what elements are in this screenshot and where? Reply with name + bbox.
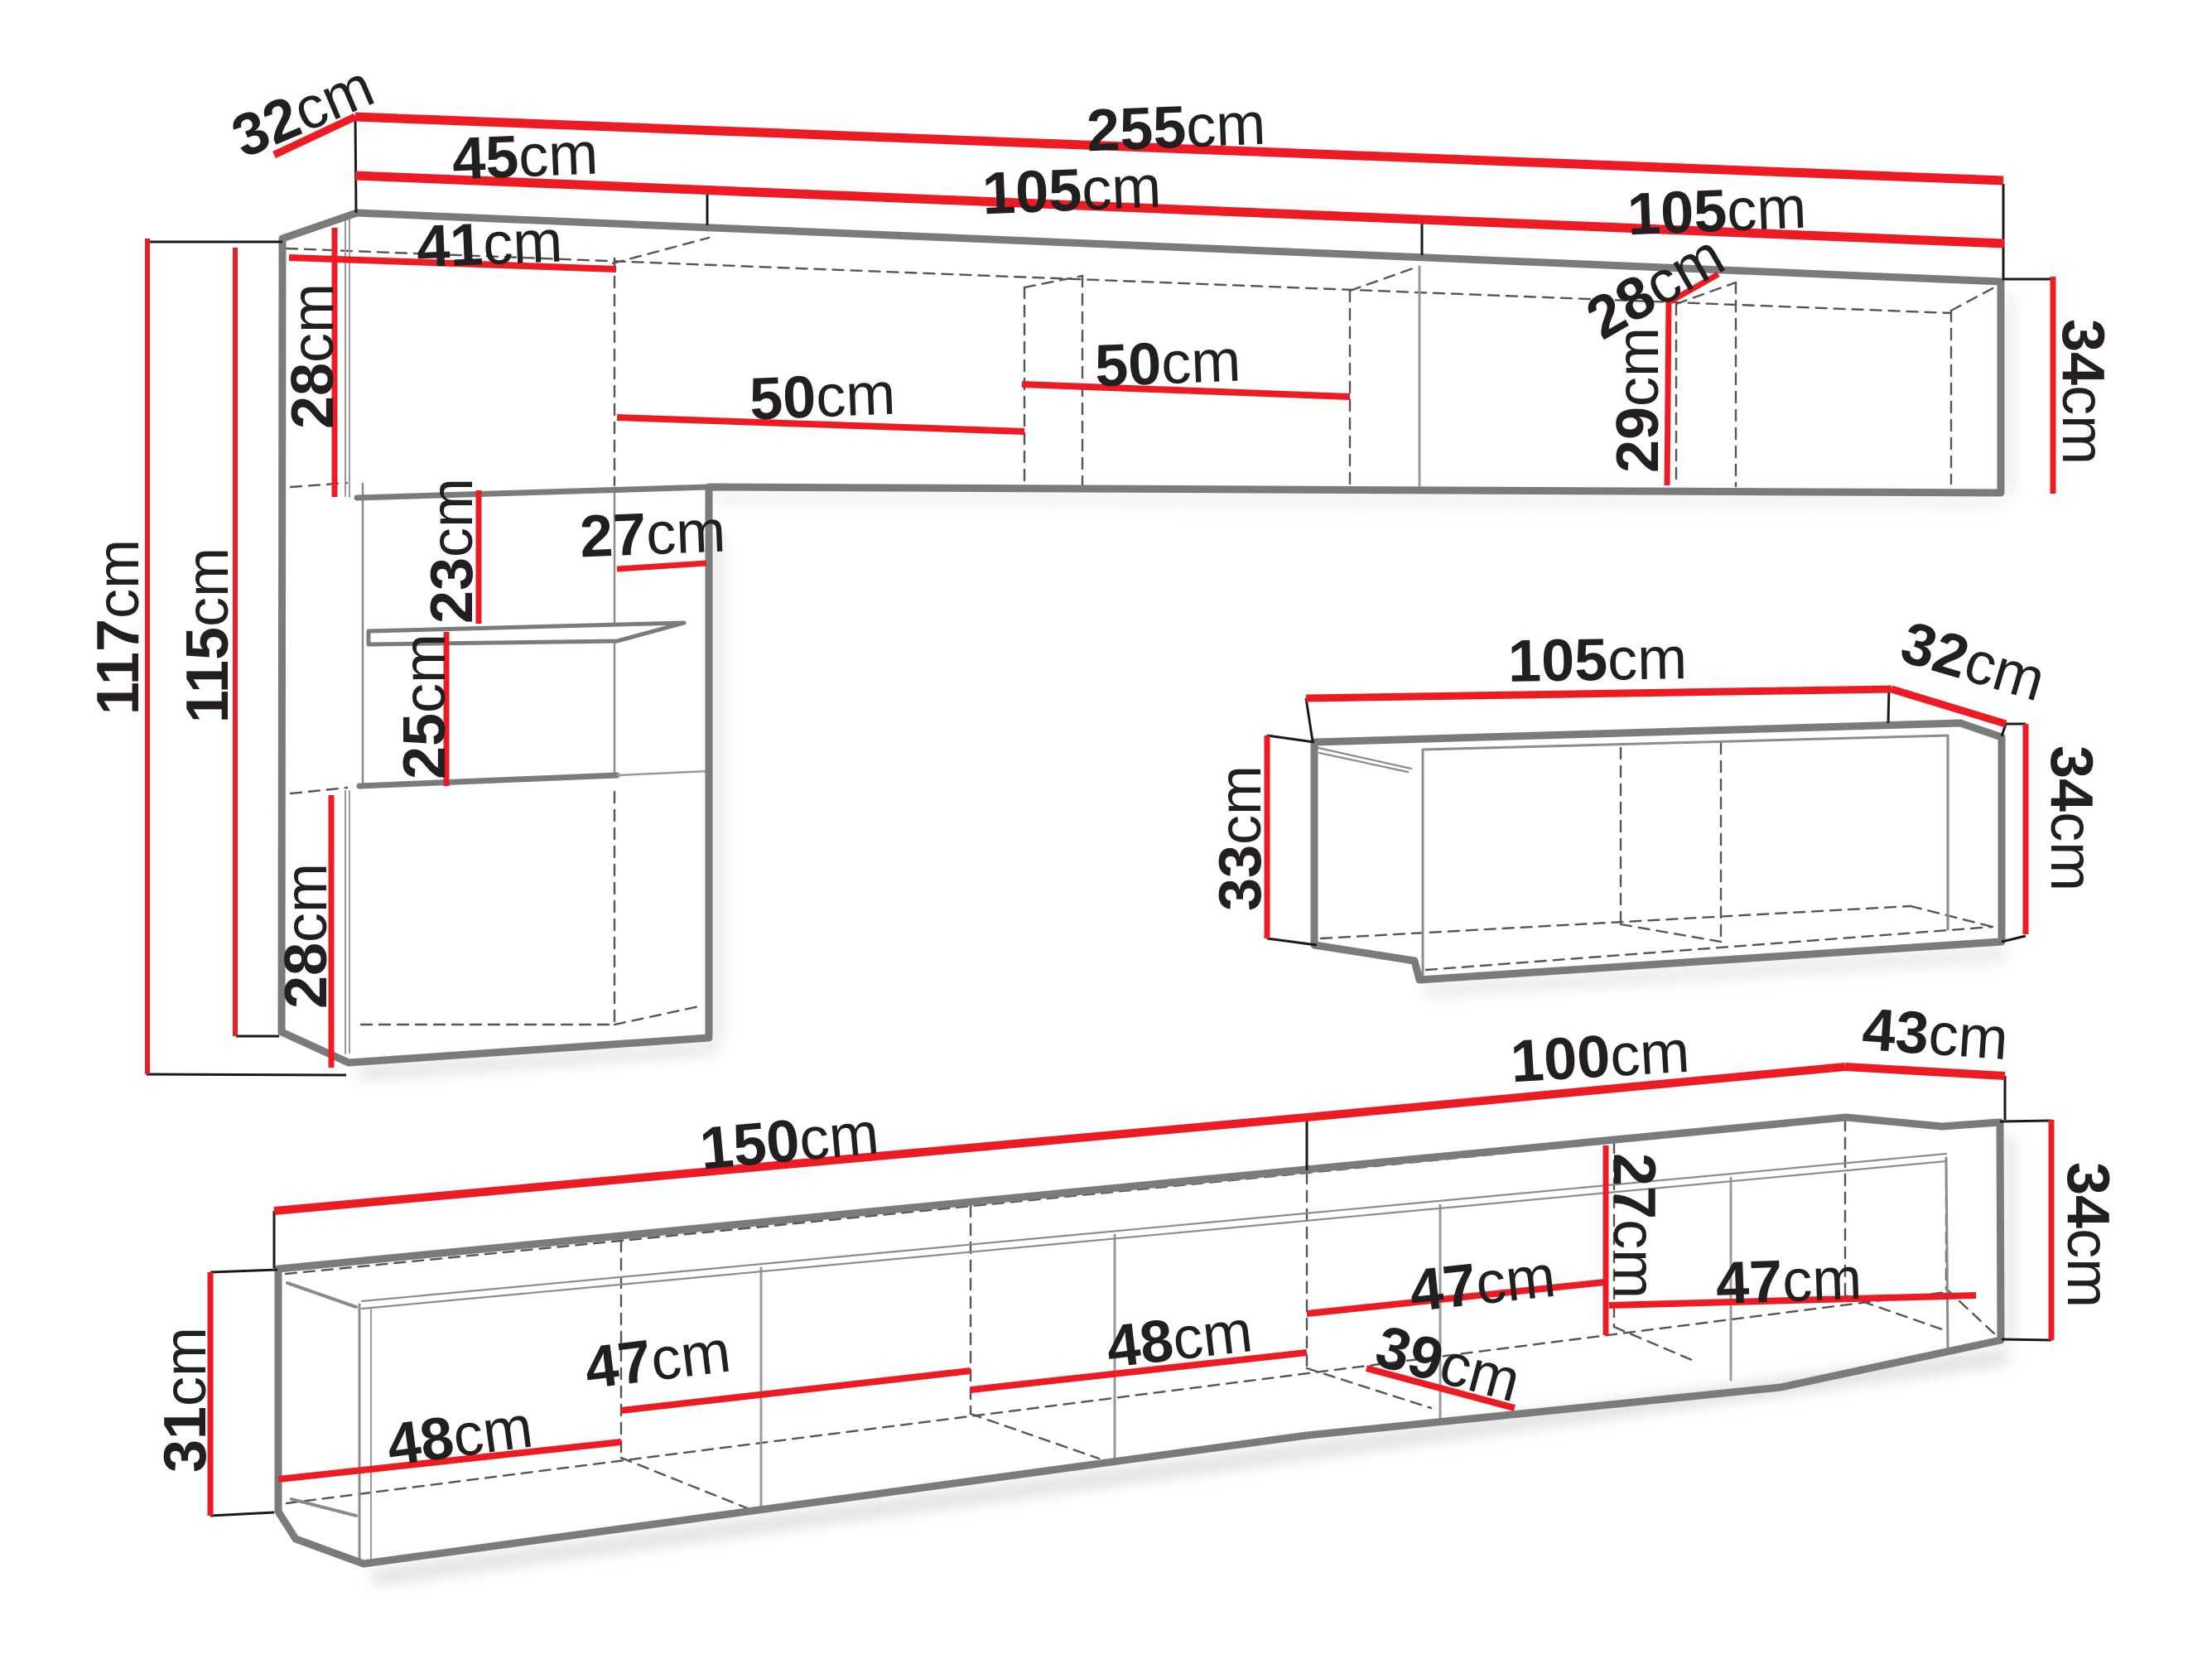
svg-text:100cm: 100cm (1509, 1019, 1691, 1096)
svg-text:105cm: 105cm (1626, 175, 1807, 248)
svg-text:34cm: 34cm (2050, 319, 2116, 465)
svg-text:50cm: 50cm (749, 360, 897, 432)
svg-text:115cm: 115cm (175, 547, 241, 723)
svg-text:47cm: 47cm (1715, 1246, 1863, 1317)
svg-text:255cm: 255cm (1085, 91, 1266, 165)
svg-text:27cm: 27cm (579, 498, 727, 570)
svg-text:105cm: 105cm (1507, 625, 1687, 695)
svg-text:50cm: 50cm (1094, 327, 1242, 399)
svg-text:23cm: 23cm (419, 478, 485, 624)
svg-text:27cm: 27cm (1601, 1153, 1667, 1299)
svg-text:117cm: 117cm (85, 539, 152, 715)
svg-text:29cm: 29cm (1605, 327, 1671, 473)
svg-text:25cm: 25cm (392, 634, 458, 779)
svg-text:41cm: 41cm (416, 208, 564, 280)
svg-text:31cm: 31cm (152, 1327, 219, 1473)
svg-text:34cm: 34cm (2038, 745, 2104, 891)
svg-text:28cm: 28cm (280, 283, 346, 429)
svg-text:45cm: 45cm (451, 120, 600, 192)
svg-text:28cm: 28cm (273, 863, 340, 1009)
svg-text:33cm: 33cm (1207, 765, 1274, 911)
svg-text:43cm: 43cm (1860, 996, 2010, 1073)
svg-text:105cm: 105cm (981, 154, 1162, 228)
svg-text:34cm: 34cm (2055, 1162, 2121, 1308)
